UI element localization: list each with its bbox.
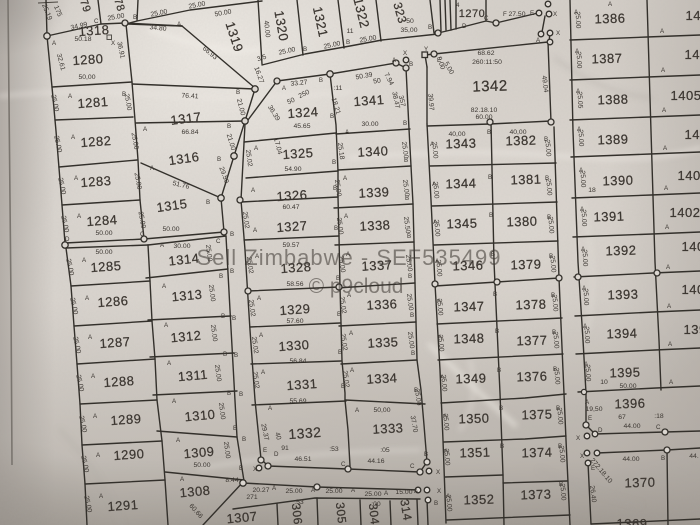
svg-text::05: :05 (380, 447, 390, 454)
svg-text:50.00: 50.00 (162, 226, 179, 233)
svg-text::18: :18 (654, 413, 664, 420)
svg-text:1332: 1332 (288, 424, 322, 442)
svg-text:91: 91 (281, 445, 289, 452)
svg-text:E: E (591, 465, 595, 472)
svg-text:E: E (530, 10, 534, 17)
svg-text:1312: 1312 (170, 328, 202, 346)
svg-text:25.00: 25.00 (364, 491, 381, 498)
svg-text:1390: 1390 (602, 172, 633, 188)
svg-text:X: X (553, 11, 557, 18)
svg-text:35,00: 35,00 (400, 27, 417, 34)
svg-text:D: D (598, 427, 603, 434)
svg-text:1333: 1333 (372, 420, 404, 437)
svg-text:66.84: 66.84 (181, 129, 198, 136)
svg-text:1325: 1325 (282, 145, 314, 162)
svg-text:1327: 1327 (276, 218, 308, 235)
svg-text:1404: 1404 (685, 127, 700, 142)
svg-text:C: C (410, 463, 415, 470)
svg-text:B: B (553, 366, 557, 373)
svg-text:56.84: 56.84 (289, 358, 306, 365)
svg-text:1374: 1374 (521, 444, 552, 460)
svg-text:B: B (133, 14, 137, 21)
svg-text:1342: 1342 (472, 77, 508, 95)
svg-text:B: B (500, 443, 504, 450)
svg-text:X: X (556, 30, 560, 37)
svg-text:1280: 1280 (72, 51, 104, 68)
svg-text:B: B (407, 233, 411, 240)
svg-text:X: X (580, 453, 584, 460)
svg-text:1324: 1324 (287, 104, 319, 121)
svg-text:44.16: 44.16 (367, 458, 384, 465)
svg-text:.53: .53 (294, 499, 304, 506)
svg-text:1341: 1341 (353, 92, 385, 109)
svg-text:B: B (551, 292, 555, 299)
svg-text:B: B (338, 349, 342, 356)
svg-text:15.00: 15.00 (395, 489, 412, 496)
svg-text:B: B (661, 455, 665, 462)
svg-text:18: 18 (588, 187, 596, 194)
svg-text:B: B (495, 328, 499, 335)
svg-text:B: B (341, 383, 345, 390)
svg-text:50,00: 50,00 (373, 407, 390, 414)
svg-text:1389: 1389 (597, 131, 628, 147)
svg-text:1392: 1392 (605, 242, 636, 258)
svg-text:60.47: 60.47 (282, 204, 299, 211)
svg-text:46.51: 46.51 (294, 456, 311, 463)
svg-text:C: C (341, 461, 346, 468)
svg-text:B: B (489, 212, 493, 219)
svg-text:X: X (437, 488, 441, 495)
svg-text:19,50: 19,50 (585, 406, 602, 413)
svg-text:B: B (232, 315, 236, 322)
svg-text:1348: 1348 (453, 330, 484, 346)
svg-text:1307: 1307 (226, 509, 258, 525)
svg-text:B: B (337, 311, 341, 318)
svg-text:Sell Zimbabwe - SEF535499: Sell Zimbabwe - SEF535499 (196, 245, 501, 270)
svg-text:50,00: 50,00 (78, 74, 95, 81)
svg-text:B: B (428, 24, 432, 31)
svg-text:1289: 1289 (110, 411, 142, 428)
svg-text:B: B (303, 46, 307, 53)
svg-text:B: B (549, 253, 553, 260)
svg-text:1340: 1340 (357, 143, 389, 160)
svg-text:20.27: 20.27 (252, 487, 269, 494)
svg-text:1400: 1400 (682, 282, 700, 297)
svg-text:50.00: 50.00 (95, 249, 112, 256)
svg-text:1335: 1335 (367, 334, 399, 351)
svg-text:1286: 1286 (97, 293, 129, 310)
svg-text:B: B (234, 352, 238, 359)
svg-text:B: B (488, 174, 492, 181)
svg-text:82.18.10: 82.18.10 (471, 107, 498, 114)
svg-text:B: B (493, 291, 497, 298)
svg-text:B: B (547, 214, 551, 221)
svg-text:271: 271 (246, 494, 258, 501)
svg-text:1270: 1270 (459, 8, 485, 20)
svg-text:40,00: 40,00 (509, 129, 526, 136)
svg-text:B: B (230, 231, 234, 238)
svg-text:260:11:50: 260:11:50 (472, 59, 502, 66)
svg-text:X: X (436, 469, 440, 476)
svg-text:B: B (206, 199, 210, 206)
svg-text:B: B (233, 425, 237, 432)
svg-text:B: B (403, 120, 407, 127)
svg-text:1407: 1407 (686, 8, 700, 23)
svg-text:B: B (333, 185, 337, 192)
svg-text:1326: 1326 (276, 187, 308, 204)
svg-text:1393: 1393 (607, 286, 638, 302)
svg-text:1308: 1308 (179, 483, 211, 501)
svg-text:1291: 1291 (107, 497, 139, 514)
svg-text:1309: 1309 (183, 444, 215, 462)
svg-text:B: B (404, 157, 408, 164)
svg-text:27.50: 27.50 (508, 11, 525, 18)
svg-text:X: X (403, 50, 407, 57)
svg-text:1338: 1338 (359, 217, 391, 234)
svg-text:55.69: 55.69 (289, 398, 306, 405)
svg-text:305: 305 (333, 502, 349, 525)
svg-text:10: 10 (600, 379, 608, 386)
svg-text:B: B (223, 351, 227, 358)
svg-text:25.00: 25.00 (325, 488, 342, 495)
svg-text:B: B (545, 175, 549, 182)
svg-text:B: B (330, 113, 334, 120)
svg-text:B: B (236, 89, 240, 96)
svg-text:C: C (94, 18, 99, 25)
svg-text:25.00: 25.00 (285, 488, 302, 495)
svg-text:B: B (414, 387, 418, 394)
svg-text:1401: 1401 (682, 239, 700, 254)
svg-text:B: B (556, 405, 560, 412)
svg-text:1290: 1290 (113, 446, 145, 463)
svg-text:E: E (263, 447, 267, 454)
svg-text:© p9cloud: © p9cloud (309, 275, 404, 298)
svg-text:1377: 1377 (516, 332, 547, 348)
svg-text:1369: 1369 (617, 516, 648, 525)
svg-text:B: B (410, 312, 414, 319)
svg-text:1344: 1344 (445, 175, 476, 191)
svg-text:F: F (503, 11, 507, 18)
svg-text:B: B (239, 391, 243, 398)
svg-text:X: X (253, 466, 257, 473)
svg-text:1380: 1380 (506, 213, 537, 229)
svg-text::00: :00 (371, 501, 381, 508)
svg-text:76.41: 76.41 (181, 93, 199, 101)
svg-text:C: C (484, 15, 489, 22)
svg-text:45.65: 45.65 (293, 123, 310, 130)
svg-text:X: X (111, 40, 115, 47)
svg-text:B: B (552, 329, 556, 336)
svg-text:1347: 1347 (453, 298, 484, 314)
svg-text:1282: 1282 (80, 133, 112, 150)
svg-text:57.60: 57.60 (286, 318, 303, 325)
svg-text:4: 4 (456, 2, 460, 9)
svg-text:1396: 1396 (614, 395, 645, 411)
svg-text:B: B (424, 451, 428, 458)
svg-text:B: B (346, 39, 350, 46)
svg-text:B: B (332, 159, 336, 166)
svg-text:1381: 1381 (510, 171, 541, 187)
svg-text:B: B (219, 273, 223, 280)
svg-text:B: B (409, 61, 413, 68)
svg-text:1329: 1329 (279, 301, 311, 318)
svg-text:B: B (497, 367, 501, 374)
svg-text:54.90: 54.90 (284, 166, 301, 173)
svg-text:B: B (239, 465, 243, 472)
svg-text:D: D (65, 236, 70, 243)
svg-text:67: 67 (618, 414, 626, 421)
svg-text:B: B (122, 91, 126, 98)
svg-text:B: B (408, 273, 412, 280)
svg-text:50.00: 50.00 (95, 230, 112, 237)
svg-text:B: B (411, 350, 415, 357)
svg-text:1402: 1402 (670, 205, 700, 220)
svg-text:1351: 1351 (459, 444, 490, 460)
svg-text:1345: 1345 (446, 215, 477, 231)
svg-text:1403: 1403 (678, 168, 700, 183)
svg-text:B: B (319, 77, 323, 84)
svg-text:1373: 1373 (520, 486, 551, 502)
svg-text:50: 50 (406, 18, 414, 25)
svg-text:C: C (140, 231, 145, 238)
svg-text:1285: 1285 (90, 258, 122, 275)
svg-text:1375: 1375 (521, 406, 552, 422)
svg-text:B: B (499, 405, 503, 412)
svg-text:50.18: 50.18 (74, 36, 91, 43)
svg-text:30.00: 30.00 (361, 121, 378, 128)
svg-text:B: B (558, 443, 562, 450)
svg-text:50.00: 50.00 (619, 383, 636, 390)
svg-text:1288: 1288 (103, 373, 135, 390)
svg-text:1399: 1399 (684, 322, 700, 337)
svg-text:1388: 1388 (597, 91, 628, 107)
svg-text:B: B (221, 313, 225, 320)
svg-text:B: B (334, 225, 338, 232)
svg-text:1334: 1334 (366, 370, 398, 387)
svg-text:1386: 1386 (594, 10, 625, 26)
svg-text:1370: 1370 (624, 474, 655, 490)
svg-text:11: 11 (346, 28, 353, 35)
svg-text:B: B (217, 156, 221, 163)
svg-text:Y: Y (424, 46, 428, 53)
svg-text:1406: 1406 (685, 47, 700, 62)
svg-text:B: B (434, 500, 438, 507)
svg-text:1376: 1376 (516, 368, 547, 384)
svg-text:39.97: 39.97 (426, 93, 434, 111)
svg-text:E: E (437, 57, 441, 64)
svg-text:B: B (242, 436, 246, 443)
svg-text::11: :11 (334, 85, 343, 92)
svg-text:44.00: 44.00 (623, 423, 640, 430)
svg-text:D: D (462, 23, 467, 30)
svg-text:60.00: 60.00 (475, 114, 492, 121)
svg-text:1281: 1281 (77, 94, 109, 111)
svg-text::53: :53 (329, 446, 339, 453)
svg-text:1391: 1391 (593, 208, 624, 224)
svg-text:B: B (227, 390, 231, 397)
svg-text:1287: 1287 (99, 334, 131, 351)
svg-text:30.00: 30.00 (173, 243, 190, 250)
svg-text:E: E (588, 415, 592, 422)
svg-text:1336: 1336 (366, 296, 398, 313)
svg-text:1394: 1394 (606, 325, 637, 341)
svg-text:B: B (544, 136, 548, 143)
svg-text:1313: 1313 (171, 287, 203, 305)
svg-text:B: B (559, 481, 563, 488)
svg-text:1331: 1331 (286, 376, 318, 393)
svg-text:C: C (216, 238, 221, 245)
svg-text:50.00: 50.00 (193, 462, 210, 469)
svg-text:44.00: 44.00 (622, 456, 639, 463)
svg-text:8.44: 8.44 (225, 477, 238, 484)
svg-text:1378: 1378 (515, 296, 546, 312)
svg-text:40,00: 40,00 (448, 131, 465, 138)
svg-text:1387: 1387 (591, 50, 622, 66)
svg-text:44.: 44. (689, 453, 699, 460)
svg-text:C: C (656, 424, 661, 431)
svg-text:B: B (405, 195, 409, 202)
svg-text:1352: 1352 (463, 491, 494, 507)
svg-text:B: B (227, 123, 231, 130)
svg-text:1379: 1379 (510, 256, 541, 272)
svg-text:1339: 1339 (358, 184, 390, 201)
svg-text:X: X (576, 435, 580, 442)
svg-text:58.56: 58.56 (286, 281, 303, 288)
svg-text:1350: 1350 (458, 410, 489, 426)
svg-text:D: D (274, 451, 279, 458)
svg-text:1310: 1310 (184, 407, 216, 425)
svg-text:50: 50 (373, 77, 382, 85)
svg-text:1349: 1349 (455, 370, 486, 386)
svg-text:1284: 1284 (86, 212, 118, 229)
svg-text:1330: 1330 (278, 337, 310, 354)
svg-text:1405: 1405 (671, 88, 700, 103)
svg-text:1311: 1311 (177, 367, 208, 385)
svg-text:68.62: 68.62 (477, 50, 494, 57)
svg-text:1395: 1395 (609, 364, 640, 380)
svg-text:B: B (487, 129, 491, 136)
svg-text:1283: 1283 (80, 173, 112, 190)
